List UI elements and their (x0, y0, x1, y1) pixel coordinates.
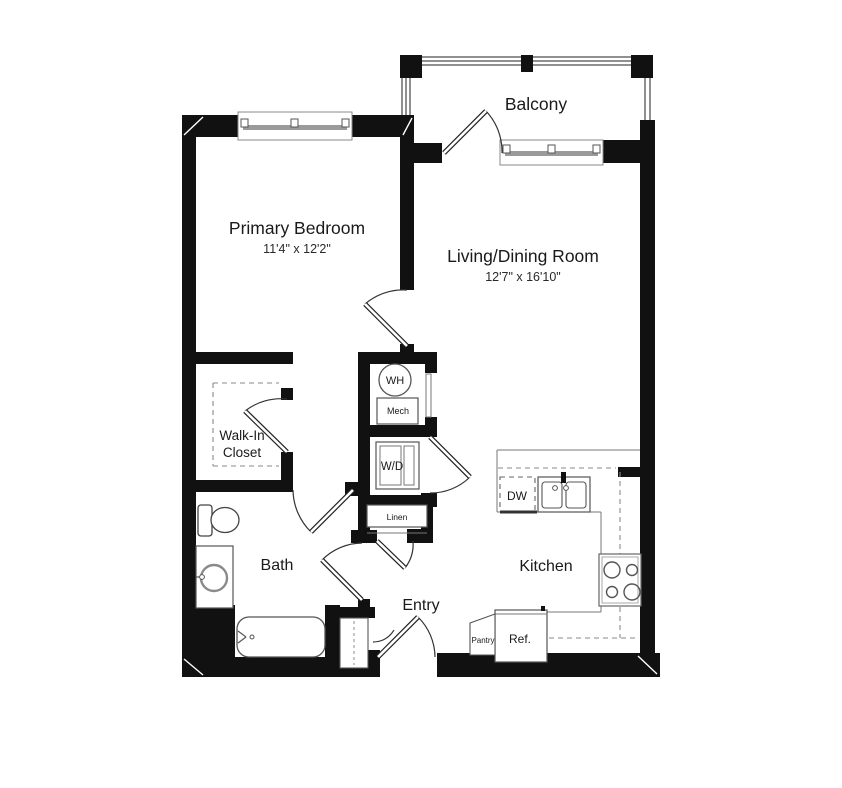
mech-louver (426, 374, 431, 417)
bedroom-window (238, 112, 352, 140)
linen-label: Linen (387, 512, 408, 522)
pantry-label: Pantry (471, 636, 494, 645)
closet-door (245, 399, 287, 452)
floor-plan: Balcony Primary Bedroom 11'4" x 12'2" Li… (0, 0, 842, 788)
floor-plan-drawing: Balcony Primary Bedroom 11'4" x 12'2" Li… (0, 0, 842, 788)
walk-in-closet-label-line2: Closet (223, 445, 262, 460)
pantry (470, 614, 495, 655)
dishwasher-label: DW (507, 489, 528, 503)
balcony-window (500, 140, 603, 165)
kitchen-sink (538, 472, 590, 512)
balcony-label: Balcony (505, 94, 568, 114)
balcony-post-middle (521, 55, 533, 72)
bedroom-door (365, 290, 407, 346)
coat-closet (340, 618, 394, 668)
mechanical-label: Mech (387, 406, 409, 416)
balcony-post-right (631, 55, 653, 78)
living-dining-label: Living/Dining Room (447, 246, 599, 266)
bath-hall-door (293, 490, 353, 532)
stove (599, 554, 641, 606)
primary-bedroom-dimensions: 11'4" x 12'2" (263, 242, 331, 256)
washer-dryer-door (430, 437, 470, 493)
bathroom-vanity (196, 546, 233, 608)
primary-bedroom-label: Primary Bedroom (229, 218, 365, 238)
entry-label: Entry (402, 597, 439, 614)
refrigerator-label: Ref. (509, 632, 531, 646)
balcony-door (444, 111, 502, 153)
washer-dryer-label: W/D (381, 461, 403, 473)
bathtub (237, 617, 325, 657)
bath-entry-door (322, 543, 362, 600)
linen-door (377, 541, 413, 568)
balcony-post-left (400, 55, 422, 78)
water-heater-label: WH (386, 375, 404, 387)
bath-label: Bath (261, 557, 294, 574)
toilet (198, 505, 239, 536)
entry-door (378, 617, 435, 657)
kitchen-label: Kitchen (519, 558, 572, 575)
living-dining-dimensions: 12'7" x 16'10" (485, 270, 561, 284)
walk-in-closet-label-line1: Walk-In (219, 428, 264, 443)
